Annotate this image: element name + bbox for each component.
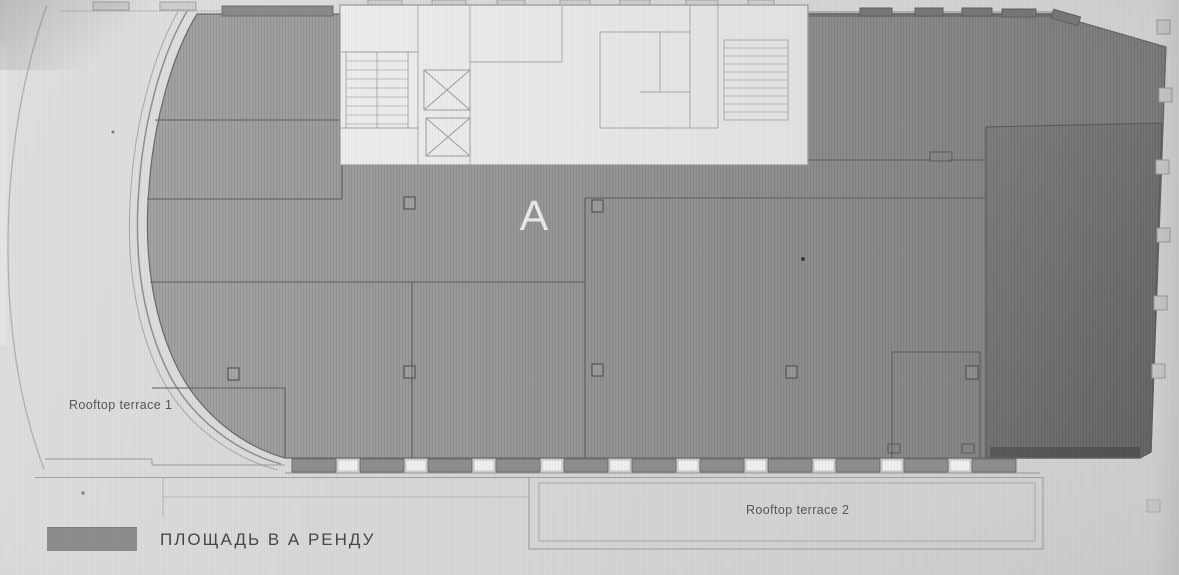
legend-label: ПЛОЩАДЬ В А РЕНДУ [160,529,375,553]
core-block [340,5,808,165]
floor-plan-photo: Rooftop terrace 1 Rooftop terrace 2 A ПЛ… [0,0,1179,575]
terrace1-outer-arc [8,5,47,469]
right-room-window-band [990,447,1140,457]
top-wall-cap-left [222,6,333,16]
right-room-shape [986,123,1162,458]
bottom-window-band [292,459,1016,472]
unit-a-label: A [509,192,559,241]
legend-swatch [47,527,137,551]
paper-highlight [0,45,7,345]
floor-plan-drawing [0,0,1179,575]
terrace1-label: Rooftop terrace 1 [69,398,172,412]
terrace2-label: Rooftop terrace 2 [746,503,849,517]
